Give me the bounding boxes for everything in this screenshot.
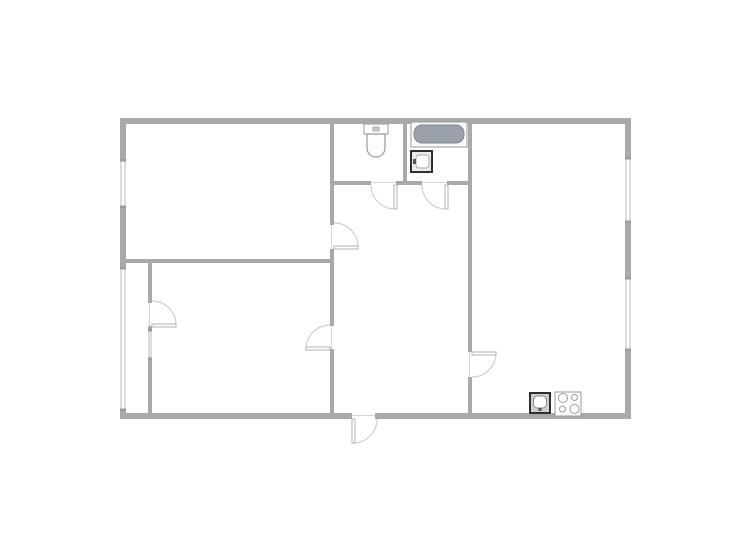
- kitchen-sink-basin: [534, 396, 547, 408]
- window-sill-cap: [120, 206, 126, 209]
- wall: [330, 349, 334, 413]
- door-leaf: [445, 185, 448, 209]
- door-threshold: [371, 182, 396, 183]
- window-sill-cap: [625, 157, 631, 160]
- door-leaf: [394, 185, 397, 209]
- wall: [148, 359, 152, 413]
- door-threshold: [331, 225, 332, 249]
- wall: [403, 124, 407, 181]
- wall: [120, 207, 126, 268]
- kitchen-sink-icon: [530, 393, 550, 413]
- door-leaf: [352, 419, 355, 443]
- toilet-icon: [364, 124, 388, 157]
- wall: [396, 181, 422, 185]
- toilet-bowl: [367, 134, 385, 157]
- window-sill-cap: [120, 267, 126, 270]
- door-threshold: [352, 415, 375, 416]
- wall: [447, 181, 468, 185]
- wall: [468, 124, 472, 352]
- window-right-bottom: [625, 277, 631, 351]
- window-sill-cap: [120, 159, 126, 162]
- floorplan-drawing: [0, 0, 750, 557]
- plan-background: [0, 0, 750, 557]
- wall: [334, 181, 371, 185]
- kitchen-sink-tap: [539, 408, 542, 411]
- window-sill-cap: [625, 277, 631, 280]
- door-leaf: [472, 352, 496, 355]
- window-sill-cap: [625, 221, 631, 224]
- wall: [625, 124, 631, 158]
- wall: [625, 350, 631, 413]
- wall: [625, 222, 631, 278]
- wall: [120, 118, 631, 124]
- window-sill-cap: [625, 349, 631, 352]
- toilet-flush-button: [373, 127, 379, 131]
- floorplan: [0, 0, 750, 557]
- stove-icon: [555, 392, 581, 416]
- door-threshold: [149, 303, 150, 326]
- window-sill-cap: [148, 329, 152, 332]
- door-leaf: [334, 246, 358, 249]
- door-threshold: [422, 182, 447, 183]
- door-leaf: [152, 324, 176, 327]
- wall: [120, 124, 126, 160]
- window-sill-cap: [120, 409, 126, 412]
- bathtub-icon: [411, 122, 467, 147]
- wall: [375, 413, 631, 419]
- window-sill-cap: [148, 358, 152, 361]
- wall: [330, 249, 334, 326]
- window-right-top: [625, 157, 631, 223]
- wall: [468, 377, 472, 413]
- wall: [126, 259, 330, 263]
- washbasin-tap: [413, 159, 416, 164]
- window-left-top: [120, 159, 126, 208]
- window-balcony-partition: [148, 329, 152, 360]
- bathroom-sink-icon: [411, 151, 432, 172]
- wall: [148, 263, 152, 303]
- wall: [120, 413, 352, 419]
- window-balcony-glazing: [120, 267, 126, 411]
- door-leaf: [306, 347, 330, 350]
- door-threshold: [331, 326, 332, 349]
- bathtub-basin: [414, 125, 464, 143]
- door-threshold: [469, 352, 470, 377]
- washbasin-basin: [416, 155, 429, 168]
- wall: [330, 124, 334, 225]
